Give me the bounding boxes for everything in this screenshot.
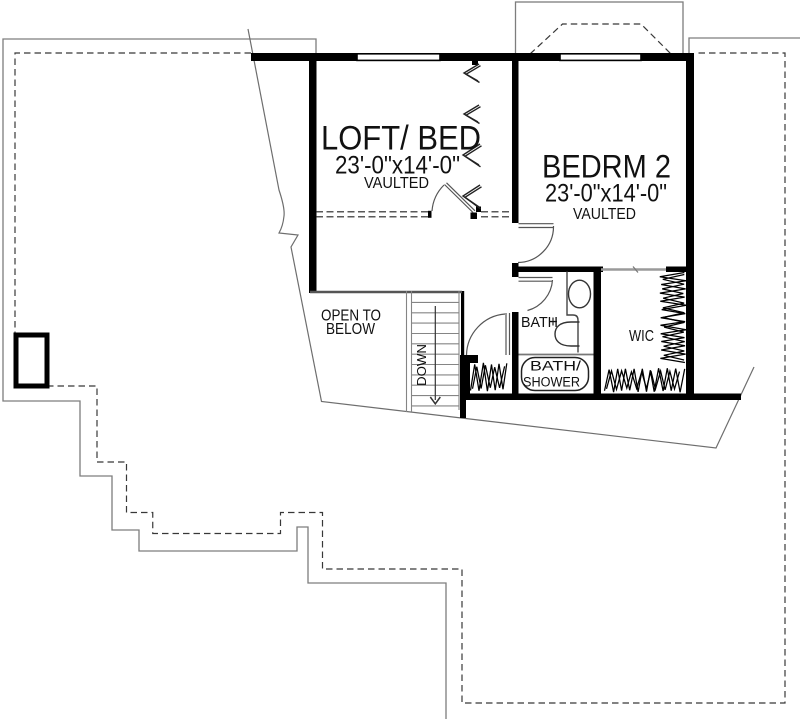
svg-text:BATH/: BATH/ [530,359,581,374]
svg-text:SHOWER: SHOWER [523,375,580,390]
svg-text:BATH: BATH [521,315,558,331]
svg-text:DOWN: DOWN [415,344,429,386]
svg-text:BELOW: BELOW [326,321,375,338]
svg-text:WIC: WIC [629,328,654,345]
svg-text:23'-0"x14'-0": 23'-0"x14'-0" [545,180,667,208]
svg-text:VAULTED: VAULTED [364,175,429,192]
svg-text:VAULTED: VAULTED [573,206,636,223]
